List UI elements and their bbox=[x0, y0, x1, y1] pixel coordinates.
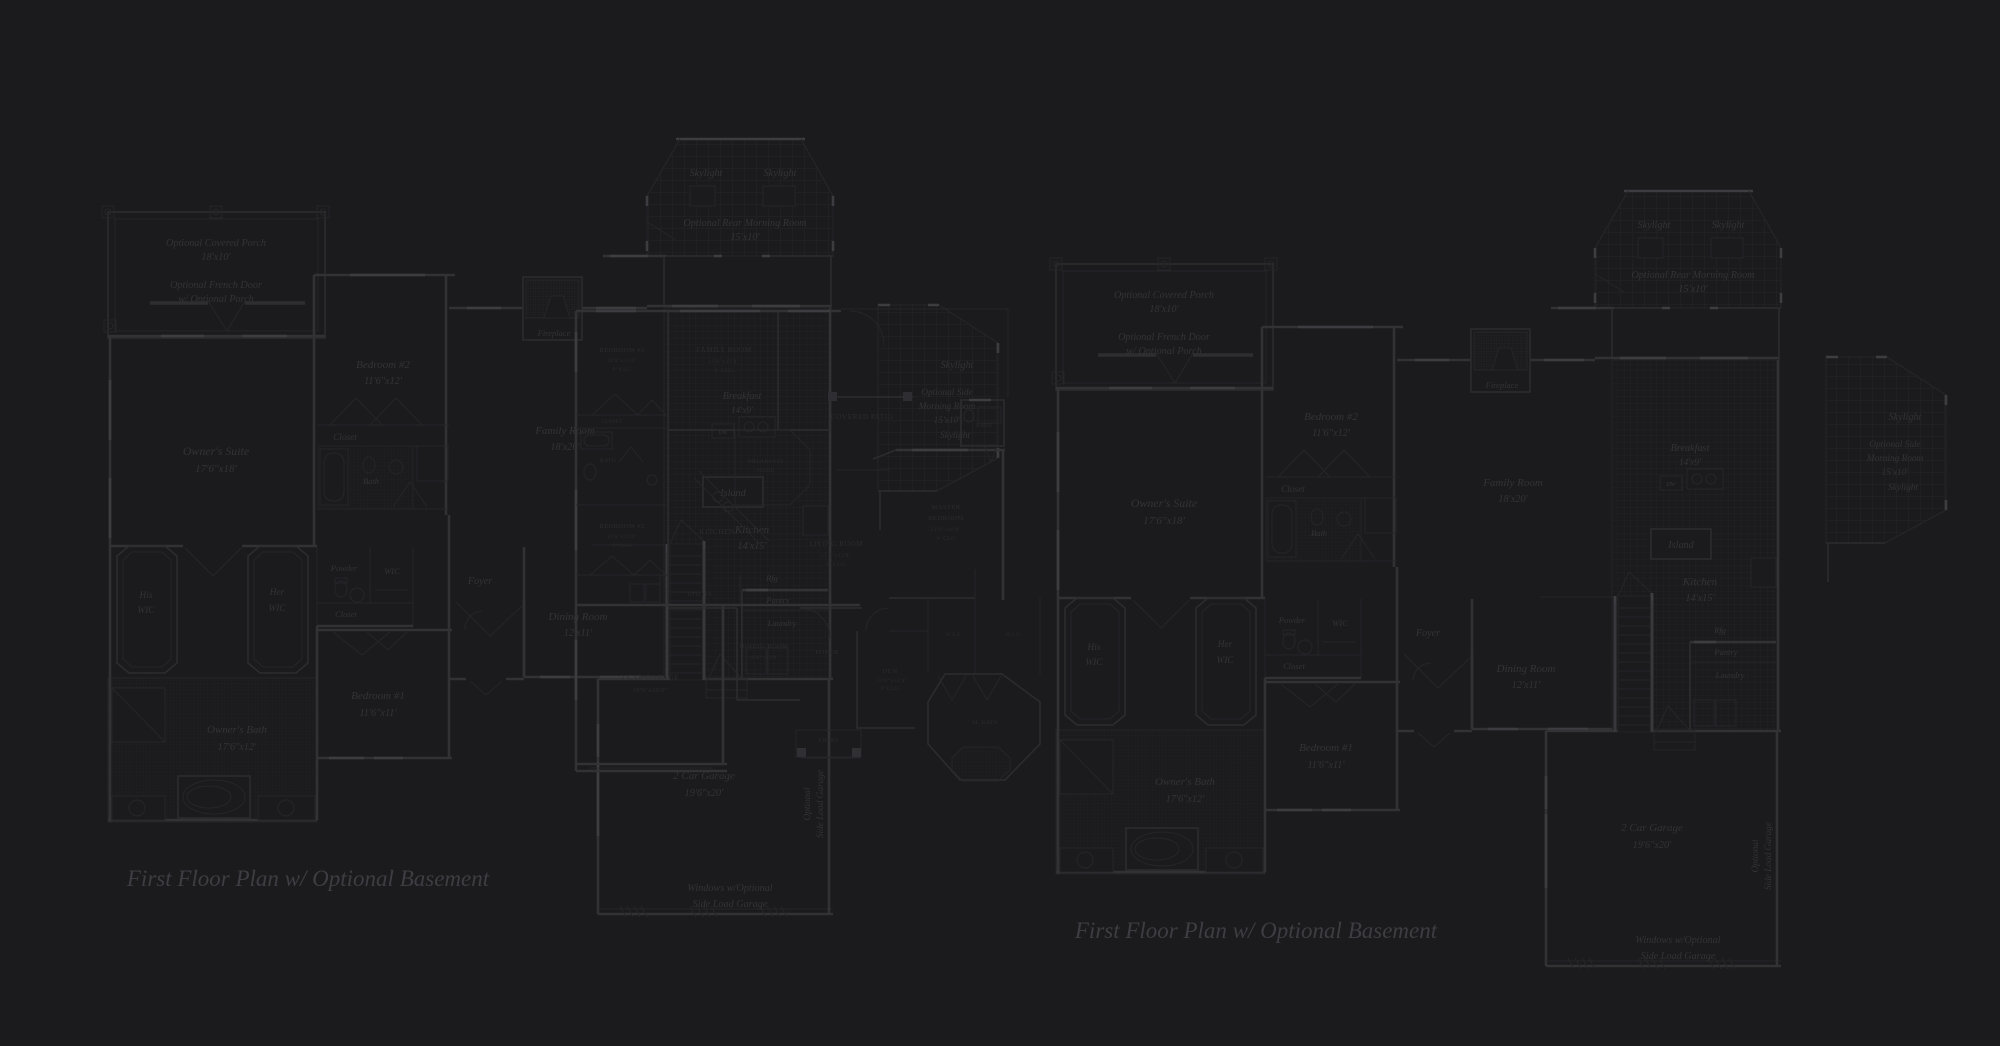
svg-text:BATH: BATH bbox=[976, 423, 992, 429]
svg-text:2 CAR GARAGE: 2 CAR GARAGE bbox=[621, 673, 679, 682]
svg-text:COVERED PATIO: COVERED PATIO bbox=[831, 412, 893, 421]
svg-text:LIVING ROOM: LIVING ROOM bbox=[809, 539, 863, 548]
svg-text:9' CLG: 9' CLG bbox=[714, 368, 733, 374]
svg-text:M. BATH: M. BATH bbox=[972, 720, 998, 726]
svg-text:9' CLG: 9' CLG bbox=[612, 367, 631, 373]
svg-text:12'0"x13'0": 12'0"x13'0" bbox=[749, 655, 780, 661]
svg-text:ENTRY: ENTRY bbox=[819, 738, 840, 744]
svg-text:BATH: BATH bbox=[600, 458, 616, 464]
svg-text:BREAKFAST: BREAKFAST bbox=[748, 459, 784, 465]
svg-text:9' CLG: 9' CLG bbox=[936, 536, 955, 542]
svg-text:BEDROOM #3: BEDROOM #3 bbox=[599, 347, 645, 354]
svg-text:MASTER: MASTER bbox=[931, 504, 960, 511]
svg-text:9' CLG: 9' CLG bbox=[612, 543, 631, 549]
svg-text:13'2"x15'8": 13'2"x15'8" bbox=[821, 553, 852, 559]
svg-text:KITCHEN: KITCHEN bbox=[699, 527, 734, 536]
svg-text:12'0"x11'6": 12'0"x11'6" bbox=[607, 358, 638, 364]
svg-text:BEDROOM #2: BEDROOM #2 bbox=[599, 523, 644, 530]
svg-text:9' CLG: 9' CLG bbox=[826, 562, 845, 568]
svg-text:UTILITY: UTILITY bbox=[687, 592, 712, 598]
svg-text:W.I.C.: W.I.C. bbox=[945, 632, 962, 638]
svg-text:FOYER: FOYER bbox=[815, 649, 839, 656]
svg-text:15'8"x17'2": 15'8"x17'2" bbox=[709, 359, 740, 365]
svg-text:11'0"x12'4": 11'0"x12'4" bbox=[877, 678, 908, 684]
svg-text:W.I.C.: W.I.C. bbox=[1005, 632, 1022, 638]
svg-text:19'6"x20'0": 19'6"x20'0" bbox=[632, 687, 667, 694]
svg-text:11'6"x11'0": 11'6"x11'0" bbox=[607, 534, 638, 540]
svg-text:BEDROOM: BEDROOM bbox=[928, 515, 964, 522]
svg-text:DINING ROOM: DINING ROOM bbox=[739, 643, 788, 650]
svg-text:NOOK: NOOK bbox=[757, 468, 776, 474]
svg-text:9' CLG: 9' CLG bbox=[880, 686, 899, 692]
svg-text:DEN: DEN bbox=[883, 668, 898, 675]
svg-text:FAMILY ROOM: FAMILY ROOM bbox=[696, 345, 751, 354]
svg-text:13'6"x16'0": 13'6"x16'0" bbox=[931, 527, 962, 533]
svg-text:CLOSET: CLOSET bbox=[602, 420, 623, 425]
